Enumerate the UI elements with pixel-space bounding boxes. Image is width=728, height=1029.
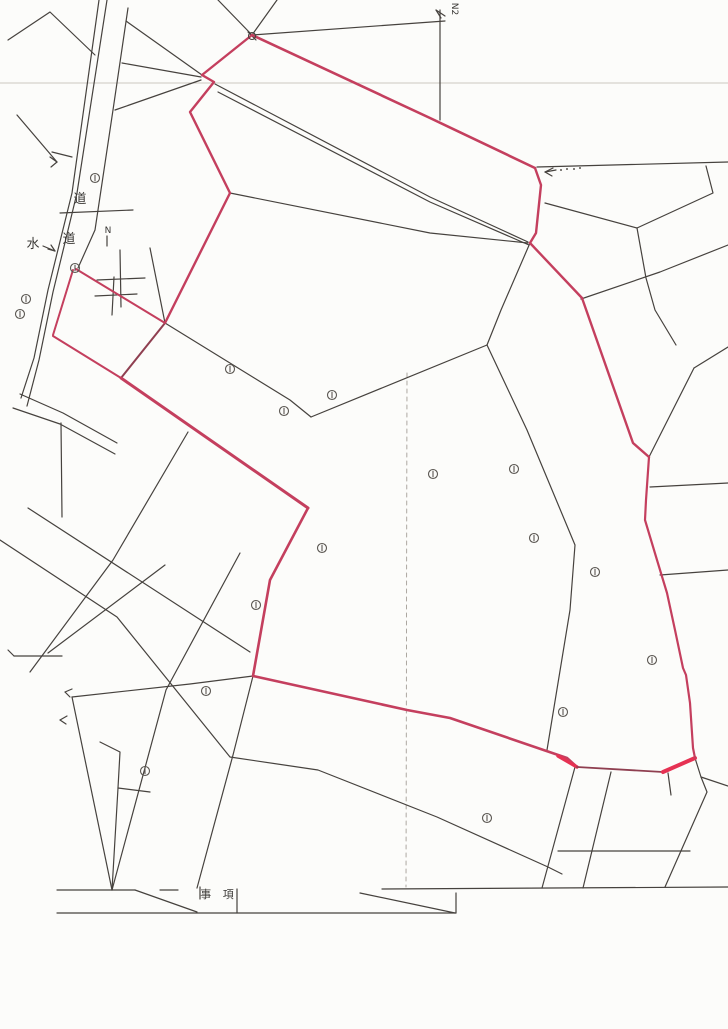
jikou-label: 事 項: [200, 888, 238, 901]
water-label: 水: [26, 237, 39, 252]
road-label-2: 道: [62, 232, 75, 247]
dotted-trail-dot: [566, 168, 568, 170]
cadastral-map-page: 道道水NN2事 項: [0, 0, 728, 1029]
dotted-trail-dot: [573, 168, 575, 170]
grid-label: N2: [449, 3, 459, 15]
dotted-trail-dot: [560, 169, 562, 171]
north-label: N: [105, 226, 112, 236]
map-canvas: 道道水NN2事 項: [0, 0, 728, 1029]
road-label-1: 道: [73, 192, 86, 207]
dotted-trail-dot: [579, 167, 581, 169]
